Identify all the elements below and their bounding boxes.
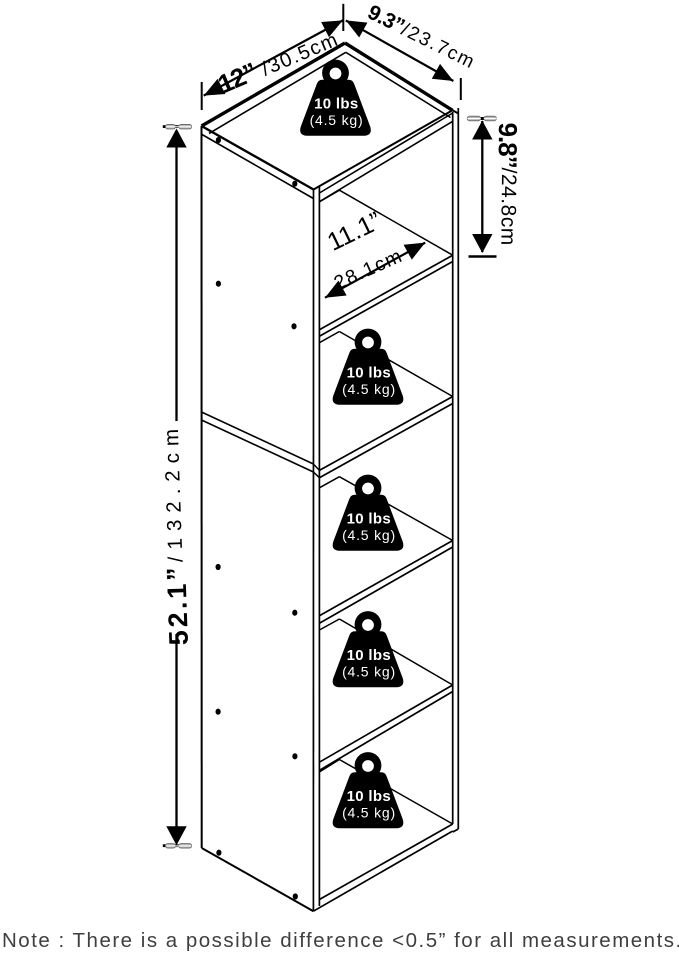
- svg-text:/24.8cm: /24.8cm: [496, 167, 520, 245]
- svg-text:9.8”: 9.8”: [493, 122, 523, 167]
- svg-text:Note : There is a possible dif: Note : There is a possible difference <0…: [2, 929, 679, 952]
- svg-text:/132.2cm: /132.2cm: [160, 422, 188, 563]
- svg-text:52.1”: 52.1”: [161, 564, 194, 646]
